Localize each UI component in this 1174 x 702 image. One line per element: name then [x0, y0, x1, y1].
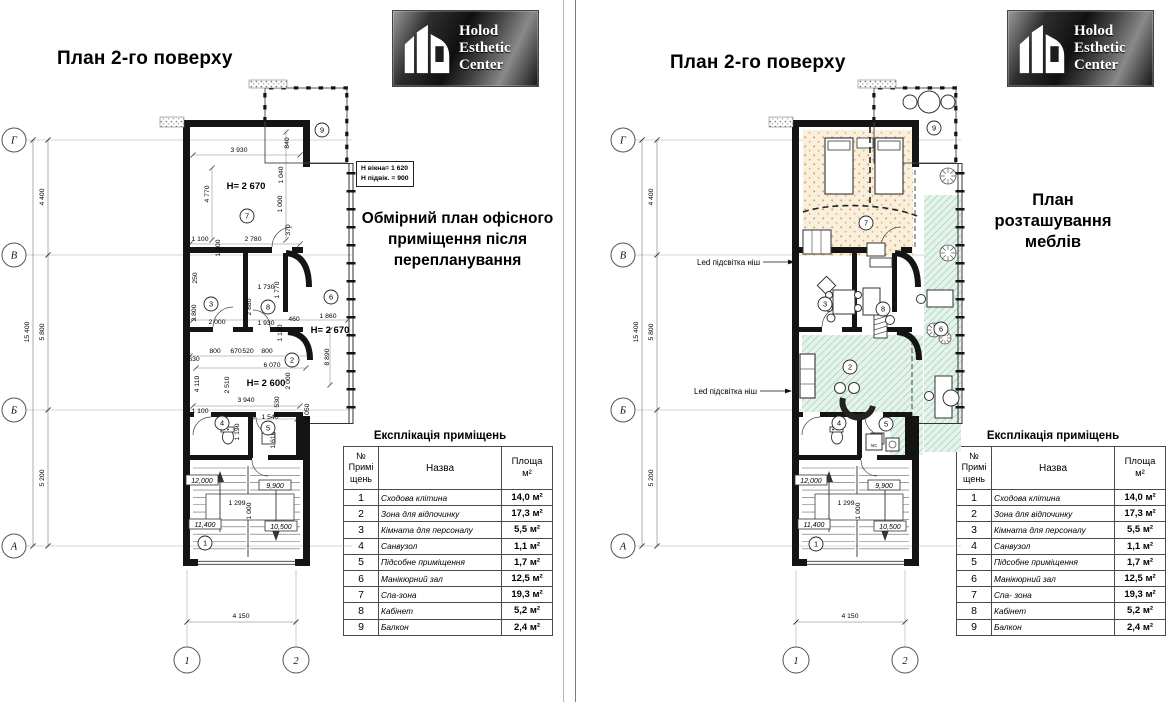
svg-text:Б: Б	[10, 406, 17, 417]
svg-text:1: 1	[203, 539, 207, 548]
svg-text:H= 2 670: H= 2 670	[311, 325, 350, 336]
svg-text:1 100: 1 100	[215, 239, 222, 256]
svg-text:2: 2	[902, 656, 908, 667]
svg-text:4 110: 4 110	[194, 376, 201, 393]
room-circle-5: 5	[261, 421, 275, 435]
svg-text:1 000: 1 000	[855, 502, 862, 519]
room-circle-5: 5	[879, 417, 893, 431]
svg-text:3: 3	[209, 300, 213, 309]
svg-text:H= 2 670: H= 2 670	[227, 181, 266, 192]
room-circle-4: 4	[832, 416, 846, 430]
svg-text:Led підсвітка ніш: Led підсвітка ніш	[694, 387, 757, 396]
svg-text:1 050: 1 050	[304, 403, 311, 420]
svg-text:2 510: 2 510	[224, 376, 231, 393]
svg-text:2 000: 2 000	[208, 319, 225, 326]
svg-text:6: 6	[939, 325, 943, 334]
svg-text:8: 8	[881, 305, 885, 314]
room-circle-8: 8	[876, 302, 890, 316]
svg-text:1 190: 1 190	[234, 423, 241, 440]
svg-text:2 000: 2 000	[285, 372, 292, 389]
svg-text:15 400: 15 400	[24, 321, 31, 342]
svg-text:9,900: 9,900	[266, 483, 284, 490]
floor-plan-left: ГВБА15 4004 4005 8005 200124 1503 930840…	[0, 0, 587, 702]
svg-text:800: 800	[209, 348, 221, 355]
svg-text:Г: Г	[619, 136, 627, 147]
svg-text:4: 4	[837, 419, 841, 428]
svg-text:1 540: 1 540	[261, 414, 278, 421]
room-circle-6: 6	[934, 322, 948, 336]
svg-text:15 400: 15 400	[633, 321, 640, 342]
floor-plan-right: ГВБА15 4004 4005 8005 200124 150мс12,000…	[587, 0, 1174, 702]
svg-text:11,400: 11,400	[195, 522, 216, 529]
svg-text:530: 530	[274, 396, 281, 408]
svg-text:1 930: 1 930	[257, 320, 274, 327]
svg-text:3: 3	[823, 300, 827, 309]
room-circle-2: 2	[843, 360, 857, 374]
svg-text:H= 2 600: H= 2 600	[247, 378, 286, 389]
svg-text:1 299: 1 299	[837, 500, 854, 507]
svg-text:840: 840	[284, 137, 291, 149]
room-circle-3: 3	[204, 297, 218, 311]
svg-text:1 000: 1 000	[277, 195, 284, 212]
room-circle-9: 9	[927, 121, 941, 135]
svg-text:4: 4	[220, 419, 224, 428]
svg-text:Led підсвітка ніш: Led підсвітка ніш	[697, 258, 760, 267]
svg-text:9: 9	[932, 124, 936, 133]
svg-text:4 400: 4 400	[39, 188, 46, 205]
svg-text:2: 2	[293, 656, 299, 667]
room-circle-3: 3	[818, 297, 832, 311]
svg-text:5 200: 5 200	[648, 469, 655, 486]
svg-text:Б: Б	[619, 406, 626, 417]
svg-text:В: В	[620, 251, 627, 262]
svg-text:4 150: 4 150	[232, 613, 249, 620]
svg-text:1 040: 1 040	[278, 166, 285, 183]
room-circle-1: 1	[198, 536, 212, 550]
svg-text:12,000: 12,000	[800, 478, 822, 485]
room-circle-1: 1	[809, 537, 823, 551]
svg-text:3 930: 3 930	[230, 147, 247, 154]
svg-text:9: 9	[320, 126, 324, 135]
svg-text:мс: мс	[871, 443, 877, 449]
svg-text:1 770: 1 770	[274, 281, 281, 298]
room-circle-7: 7	[859, 216, 873, 230]
svg-text:630: 630	[188, 356, 200, 363]
svg-text:Г: Г	[10, 136, 18, 147]
room-circle-9: 9	[315, 123, 329, 137]
svg-text:5 200: 5 200	[39, 469, 46, 486]
svg-text:250: 250	[192, 272, 199, 284]
svg-text:1 100: 1 100	[191, 236, 208, 243]
svg-text:6: 6	[329, 293, 333, 302]
svg-text:3 940: 3 940	[237, 397, 254, 404]
svg-text:9,900: 9,900	[875, 483, 893, 490]
svg-text:10,500: 10,500	[879, 524, 901, 531]
svg-text:1: 1	[814, 540, 818, 549]
svg-text:1 730: 1 730	[257, 284, 274, 291]
svg-text:12,000: 12,000	[191, 478, 213, 485]
svg-text:5: 5	[266, 424, 270, 433]
svg-text:4 150: 4 150	[841, 613, 858, 620]
svg-text:11,400: 11,400	[804, 522, 825, 529]
svg-text:2: 2	[848, 363, 852, 372]
svg-text:520: 520	[242, 348, 254, 355]
svg-text:8 890: 8 890	[324, 348, 331, 365]
axis-grid: ГВБА15 4004 4005 8005 200124 150	[2, 128, 352, 673]
svg-text:В: В	[11, 251, 18, 262]
room-circle-4: 4	[215, 416, 229, 430]
svg-text:1 150: 1 150	[277, 324, 284, 341]
svg-text:5 800: 5 800	[648, 323, 655, 340]
svg-text:460: 460	[288, 316, 300, 323]
svg-text:6 070: 6 070	[263, 362, 280, 369]
svg-text:А: А	[10, 542, 18, 553]
svg-text:7: 7	[245, 212, 249, 221]
svg-text:370: 370	[285, 224, 292, 236]
room-circle-6: 6	[324, 290, 338, 304]
svg-text:2 780: 2 780	[244, 236, 261, 243]
svg-text:10,500: 10,500	[270, 524, 292, 531]
svg-text:1: 1	[184, 656, 189, 667]
led-annotations: Led підсвітка нішLed підсвітка ніш	[694, 258, 795, 396]
svg-text:5 800: 5 800	[39, 323, 46, 340]
svg-text:1: 1	[793, 656, 798, 667]
room-circle-7: 7	[240, 209, 254, 223]
blueprint-page: План 2-го поверху Holod Esthetic Center …	[0, 0, 1174, 702]
svg-text:4 770: 4 770	[204, 185, 211, 202]
svg-text:8: 8	[266, 303, 270, 312]
svg-text:5: 5	[884, 420, 888, 429]
svg-text:4 400: 4 400	[648, 188, 655, 205]
svg-text:1 860: 1 860	[319, 313, 336, 320]
svg-text:670: 670	[230, 348, 242, 355]
svg-text:А: А	[619, 542, 627, 553]
svg-text:2: 2	[290, 356, 294, 365]
svg-text:1 000: 1 000	[246, 502, 253, 519]
svg-text:800: 800	[261, 348, 273, 355]
svg-text:7: 7	[864, 219, 868, 228]
svg-text:1 299: 1 299	[228, 500, 245, 507]
svg-text:1 100: 1 100	[191, 408, 208, 415]
room-circle-2: 2	[285, 353, 299, 367]
svg-text:2 880: 2 880	[246, 298, 253, 315]
room-circle-8: 8	[261, 300, 275, 314]
svg-text:2 800: 2 800	[191, 304, 198, 321]
